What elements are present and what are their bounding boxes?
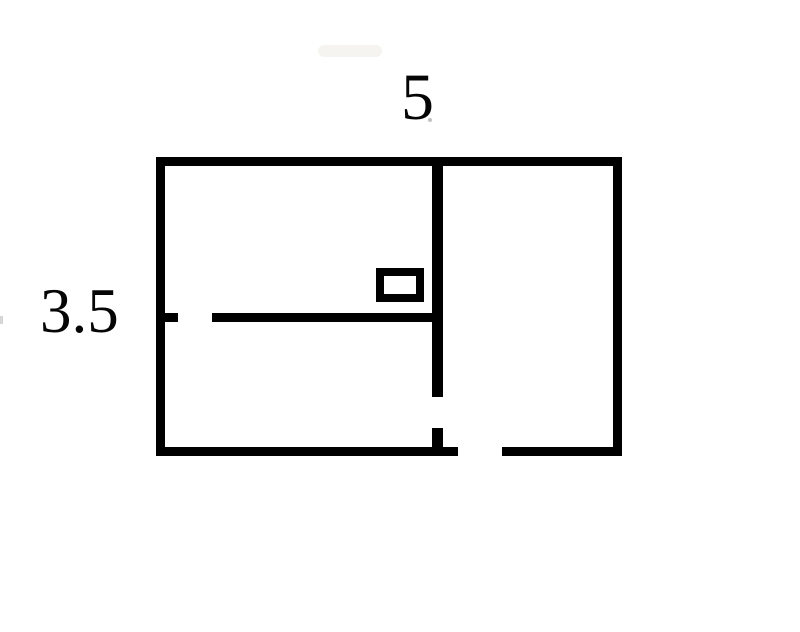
outer-wall-left [156, 157, 165, 456]
floor-plan-diagram: 5 3.5 [0, 0, 800, 632]
edge-speck-artifact [0, 316, 3, 324]
interior-vertical-wall-stub [432, 428, 443, 456]
interior-horizontal-wall-stub [159, 313, 178, 322]
interior-horizontal-wall [212, 313, 443, 322]
faint-smudge-artifact [318, 45, 382, 57]
outer-wall-right [613, 157, 622, 456]
outer-wall-bottom-right-segment [502, 447, 622, 456]
outer-wall-top [156, 157, 622, 166]
faint-dot-artifact [428, 118, 432, 122]
height-dimension-label: 3.5 [40, 280, 119, 343]
small-rectangle-symbol [376, 268, 424, 302]
interior-vertical-wall [432, 157, 443, 397]
outer-wall-bottom-left-segment [156, 447, 458, 456]
